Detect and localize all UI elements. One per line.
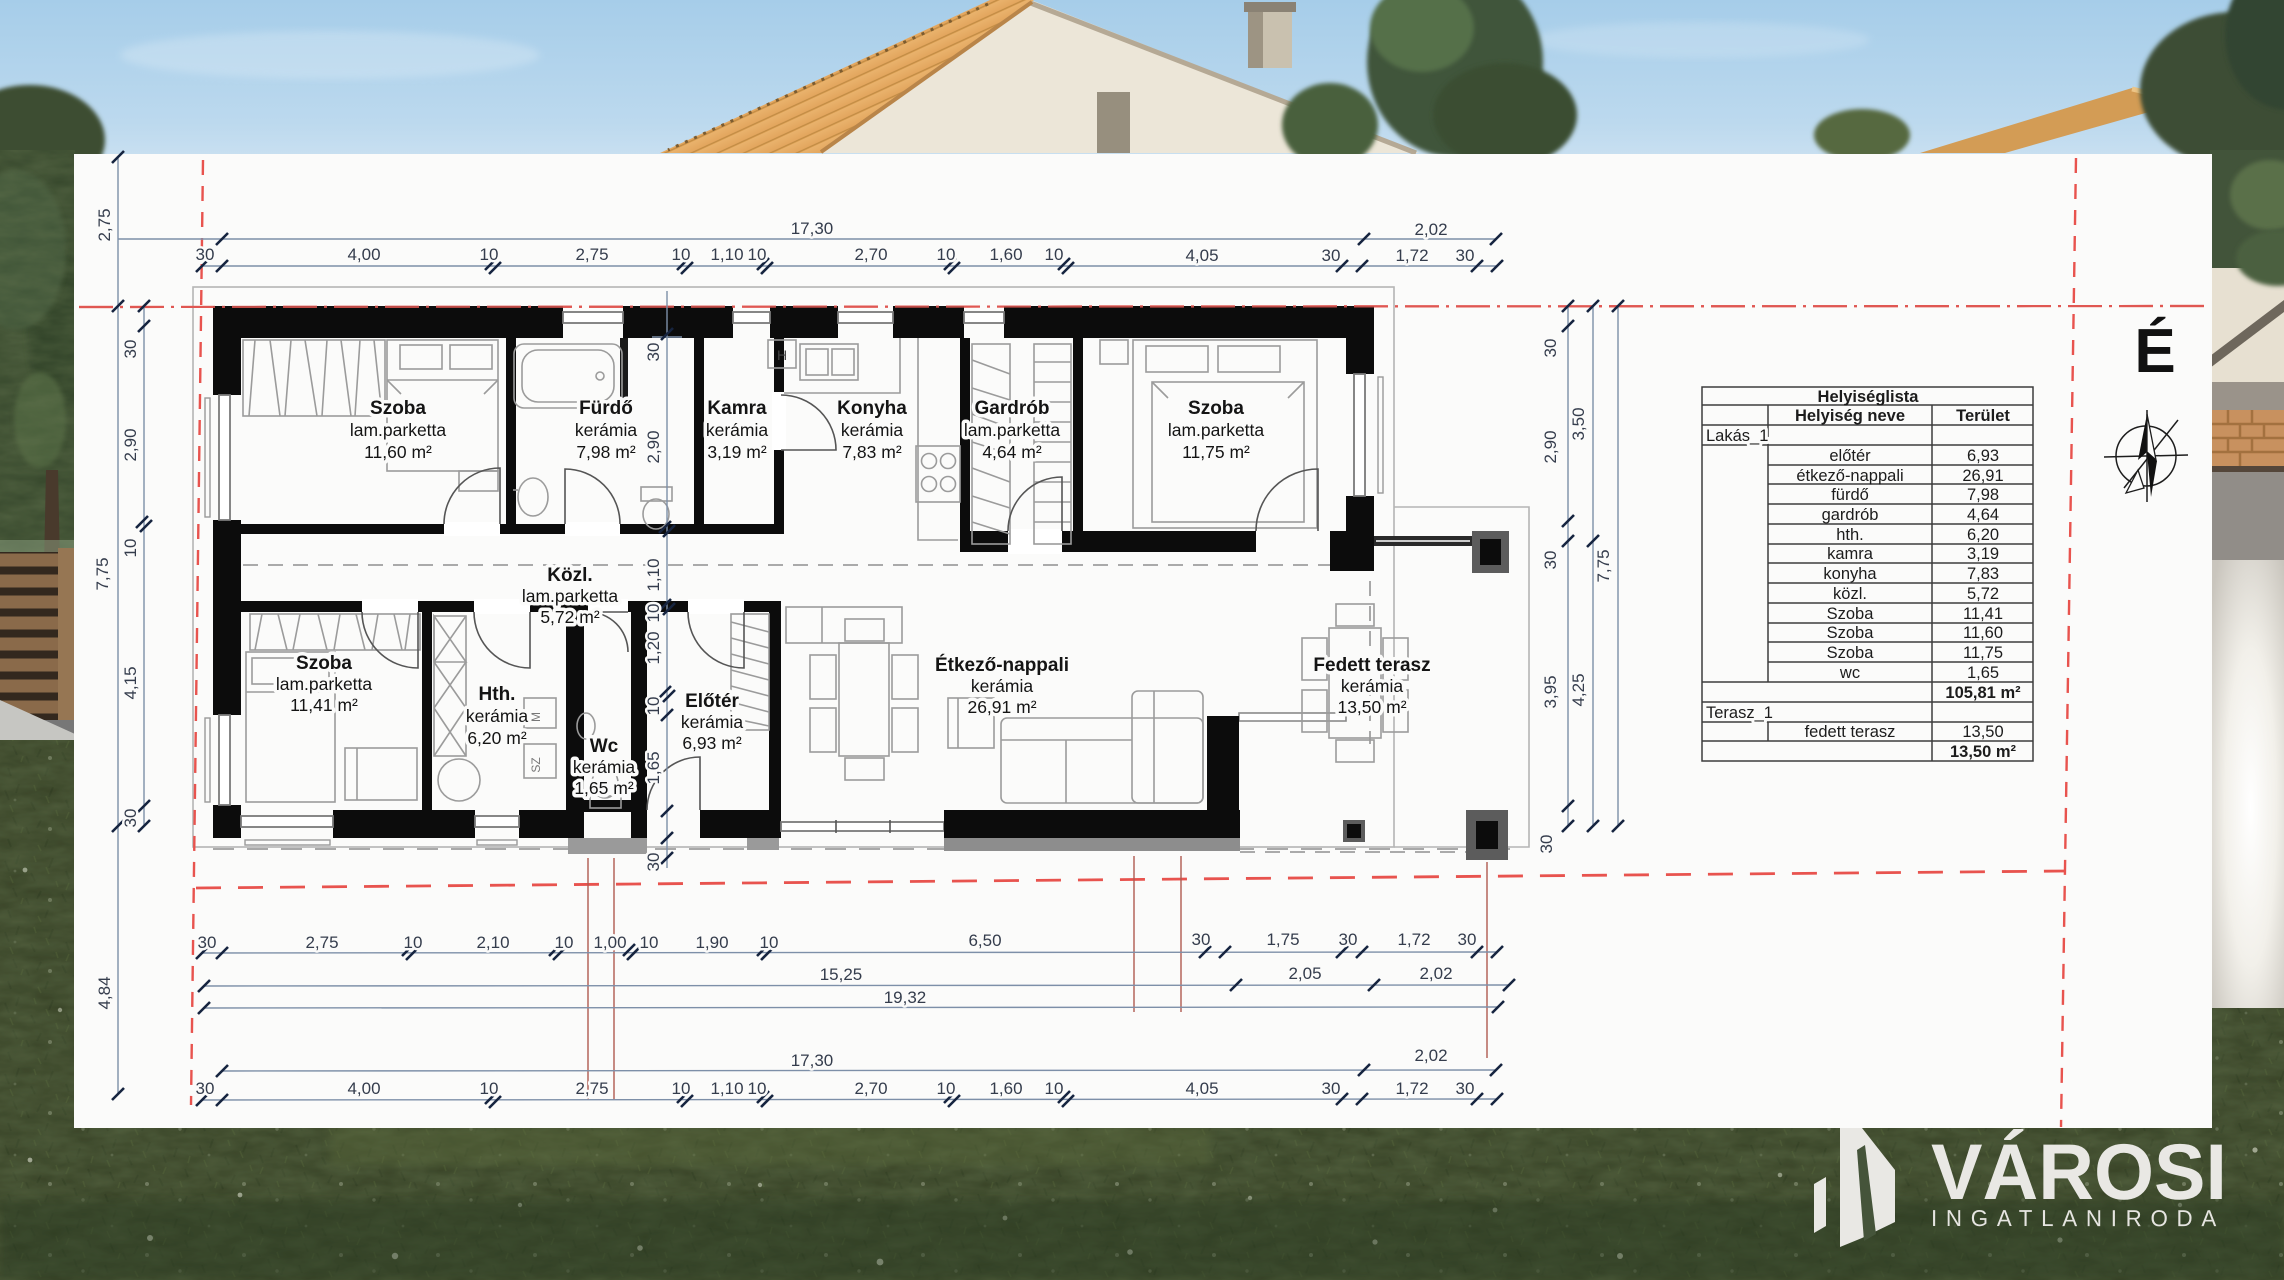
svg-text:INGATLANIRODA: INGATLANIRODA <box>1931 1205 2225 1231</box>
svg-text:VÁROSI: VÁROSI <box>1931 1127 2227 1216</box>
